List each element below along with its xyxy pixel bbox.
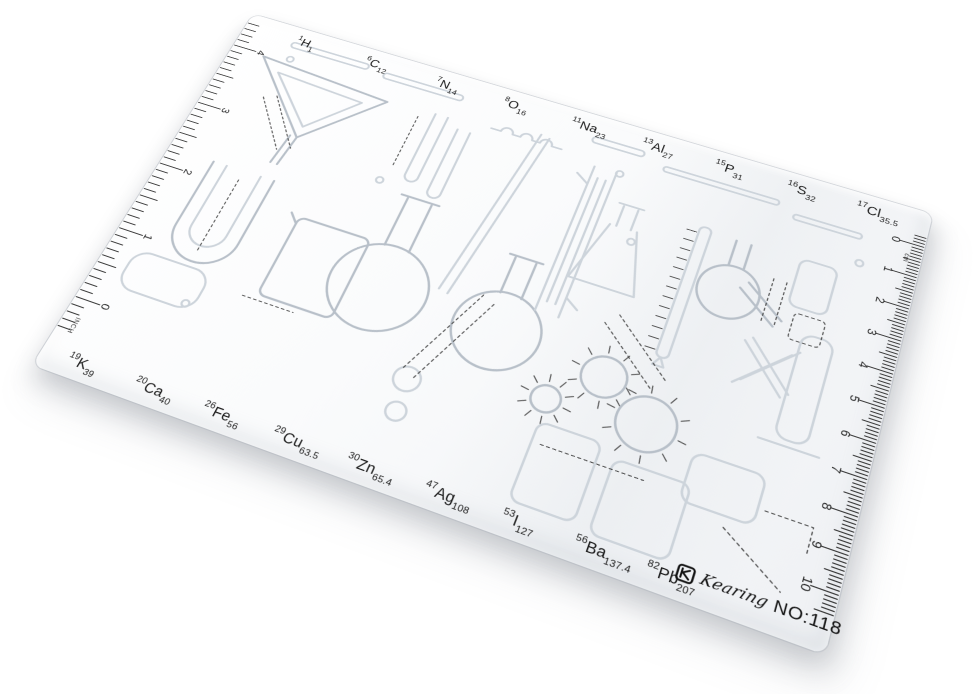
atomic-number: 16: [787, 178, 800, 189]
bubble-tube-cutout: [491, 124, 563, 150]
round-flask-cutout-2: [437, 246, 568, 383]
funnel-cutout: [210, 56, 391, 185]
inch-ruler-ticks: [58, 23, 269, 334]
slot-cutouts: [280, 42, 869, 240]
test-tube-cutouts: [399, 114, 474, 200]
condenser-cutout: [521, 162, 630, 322]
cm-ruler-ticks: [805, 231, 925, 615]
glass-tube-cutout: [438, 126, 550, 303]
atomic-number: 17: [856, 198, 869, 209]
round-flask-cutout: [310, 186, 466, 344]
dotted-guide-lines: [111, 74, 885, 598]
burette-cutout: [652, 226, 712, 368]
clamp-cross-cutout: [732, 335, 800, 399]
burette-graduations: [645, 229, 696, 349]
beaker-cutout: [248, 212, 371, 318]
glassware-cutouts: [32, 14, 933, 655]
erlenmeyer-flask-cutout: [568, 197, 664, 297]
product-photo: 1H1 6C12 7N14 8O16 11Na23 13Al27 15P31 1…: [0, 0, 974, 694]
stencil-sheet: 1H1 6C12 7N14 8O16 11Na23 13Al27 15P31 1…: [32, 14, 933, 655]
